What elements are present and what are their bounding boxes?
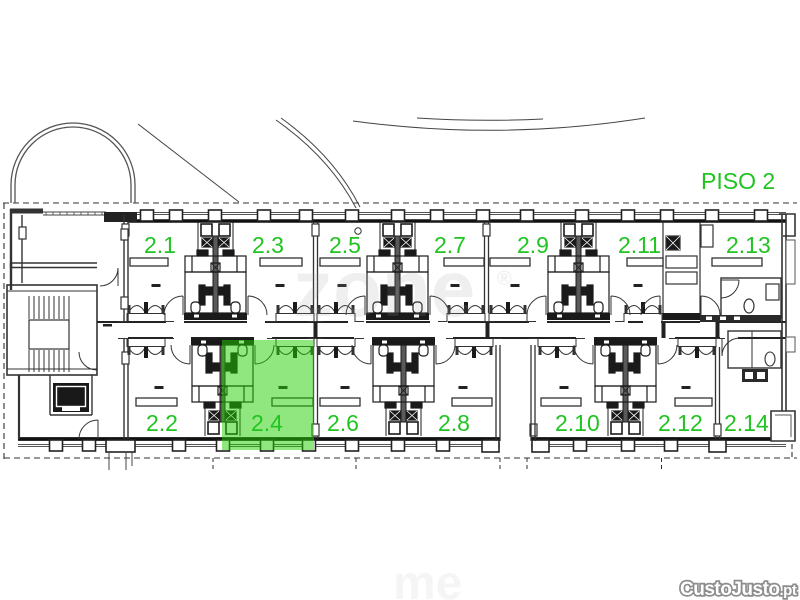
svg-text:2.6: 2.6 xyxy=(327,410,359,436)
svg-text:PISO 2: PISO 2 xyxy=(701,168,775,194)
svg-text:2.1: 2.1 xyxy=(144,232,176,258)
svg-text:CustoJusto.pt: CustoJusto.pt xyxy=(680,579,797,600)
svg-text:zone: zone xyxy=(293,244,475,333)
svg-text:2.2: 2.2 xyxy=(146,410,178,436)
svg-text:2.13: 2.13 xyxy=(726,232,771,258)
svg-text:2.14: 2.14 xyxy=(724,410,769,436)
svg-text:2.4: 2.4 xyxy=(251,410,283,436)
svg-text:2.8: 2.8 xyxy=(438,410,470,436)
svg-text:2.12: 2.12 xyxy=(658,410,703,436)
svg-text:2.10: 2.10 xyxy=(555,410,600,436)
svg-text:2.3: 2.3 xyxy=(252,232,284,258)
svg-text:me: me xyxy=(393,557,462,600)
svg-text:2.9: 2.9 xyxy=(517,232,549,258)
svg-text:2.11: 2.11 xyxy=(618,232,661,258)
svg-text:®: ® xyxy=(497,268,512,290)
